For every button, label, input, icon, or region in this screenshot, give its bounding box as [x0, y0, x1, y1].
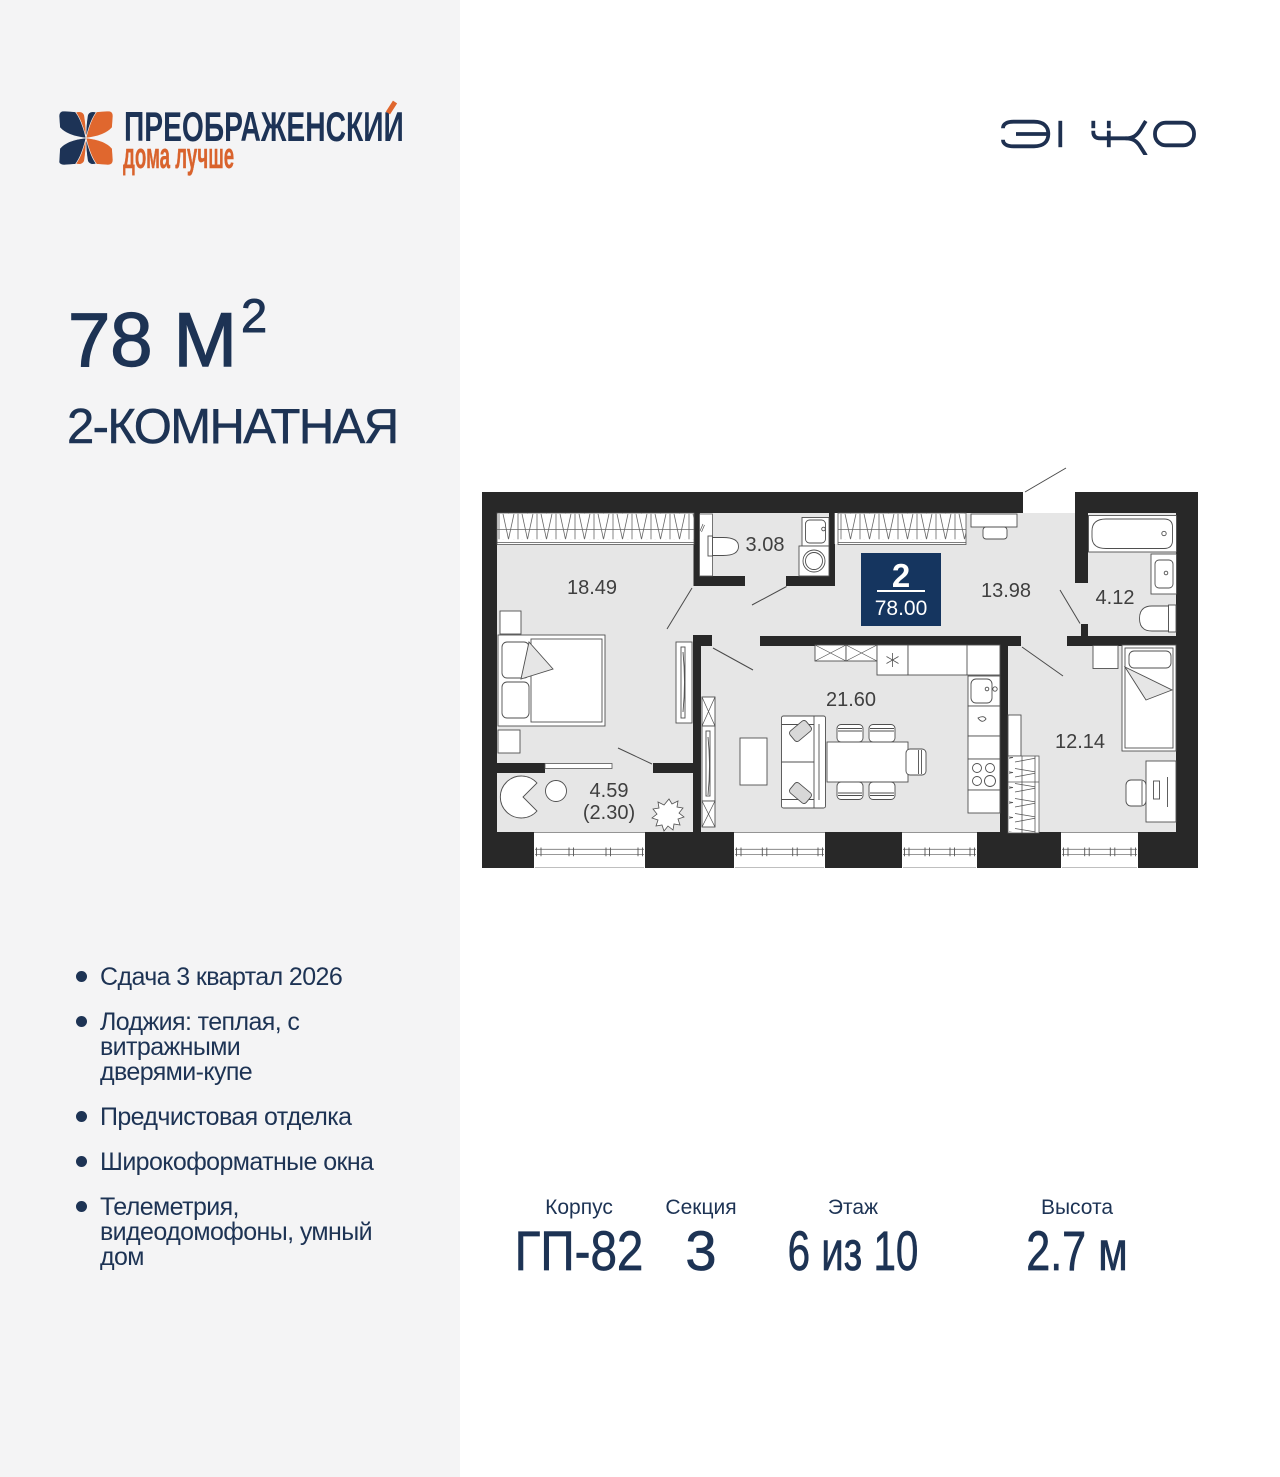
svg-text:78.00: 78.00: [875, 597, 928, 620]
svg-text:18.49: 18.49: [567, 577, 617, 599]
svg-text:(2.30): (2.30): [583, 802, 635, 824]
svg-text:21.60: 21.60: [826, 689, 876, 711]
svg-text:3.08: 3.08: [746, 534, 785, 556]
svg-text:4.59: 4.59: [590, 780, 629, 802]
svg-text:12.14: 12.14: [1055, 731, 1105, 753]
svg-text:13.98: 13.98: [981, 580, 1031, 602]
svg-text:4.12: 4.12: [1096, 587, 1135, 609]
svg-text:2: 2: [892, 557, 910, 594]
